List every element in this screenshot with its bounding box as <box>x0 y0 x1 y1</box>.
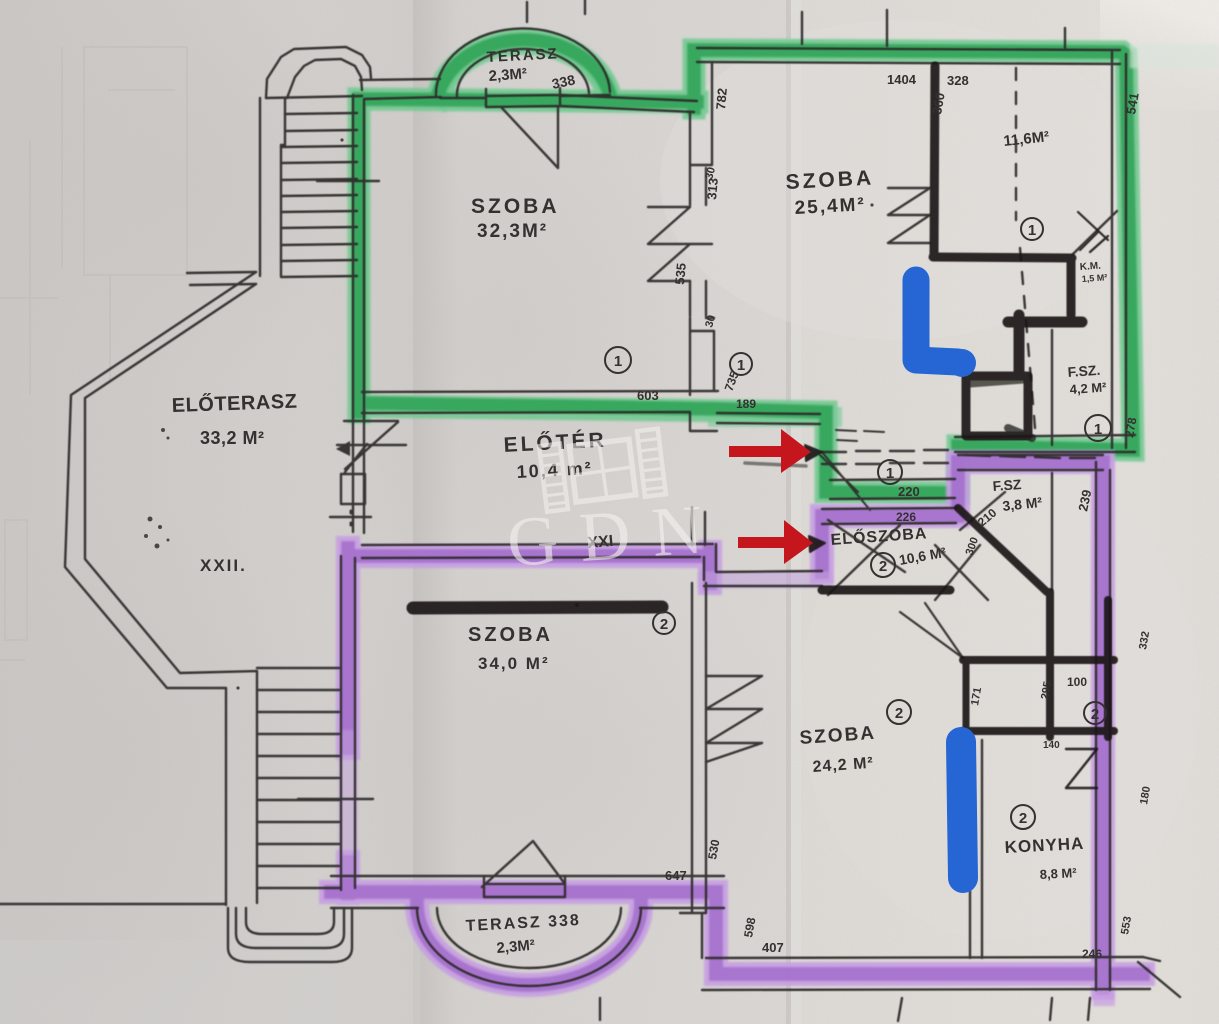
svg-text:2,3M²: 2,3M² <box>496 937 536 957</box>
svg-text:1: 1 <box>737 357 745 374</box>
svg-text:32,3M²: 32,3M² <box>477 221 548 242</box>
svg-text:2: 2 <box>1091 706 1099 723</box>
svg-text:GDN: GDN <box>505 490 727 582</box>
svg-text:2: 2 <box>879 558 887 575</box>
svg-text:535: 535 <box>672 262 689 285</box>
svg-text:226: 226 <box>896 510 916 524</box>
svg-text:140: 140 <box>1043 740 1060 751</box>
svg-text:1: 1 <box>1094 421 1102 438</box>
svg-text:407: 407 <box>762 940 784 955</box>
svg-text:33,2 M²: 33,2 M² <box>200 428 265 448</box>
svg-text:2,3M²: 2,3M² <box>488 65 527 85</box>
svg-text:F.SZ: F.SZ <box>992 476 1022 494</box>
svg-text:2: 2 <box>660 616 668 633</box>
svg-text:246: 246 <box>1082 947 1102 961</box>
svg-text:8,8 M²: 8,8 M² <box>1039 865 1077 882</box>
svg-text:189: 189 <box>736 397 756 411</box>
svg-text:2: 2 <box>895 705 903 722</box>
svg-text:1: 1 <box>614 353 622 370</box>
svg-text:603: 603 <box>637 388 659 403</box>
svg-text:10,4 m²: 10,4 m² <box>516 458 593 482</box>
svg-text:100: 100 <box>1067 675 1087 689</box>
svg-text:2: 2 <box>1019 810 1027 827</box>
svg-text:647: 647 <box>665 868 687 883</box>
svg-text:782: 782 <box>713 87 730 110</box>
svg-text:F.SZ.: F.SZ. <box>1067 362 1101 380</box>
svg-text:25,4M²: 25,4M² <box>794 194 866 219</box>
svg-text:34,0 M²: 34,0 M² <box>478 654 550 673</box>
svg-text:ELŐTERASZ: ELŐTERASZ <box>171 390 297 417</box>
svg-text:1: 1 <box>886 465 894 482</box>
svg-text:SZOBA: SZOBA <box>471 195 560 218</box>
svg-text:1: 1 <box>1028 222 1036 239</box>
svg-text:1,5 M²: 1,5 M² <box>1081 272 1107 284</box>
svg-text:4,2 M²: 4,2 M² <box>1069 379 1107 397</box>
svg-text:1404: 1404 <box>887 72 917 87</box>
svg-text:SZOBA: SZOBA <box>468 624 553 646</box>
svg-text:328: 328 <box>947 73 969 88</box>
svg-text:K.M.: K.M. <box>1079 261 1101 273</box>
svg-text:XXII.: XXII. <box>200 556 247 575</box>
svg-text:SZOBA: SZOBA <box>785 166 875 194</box>
svg-text:220: 220 <box>898 484 920 499</box>
